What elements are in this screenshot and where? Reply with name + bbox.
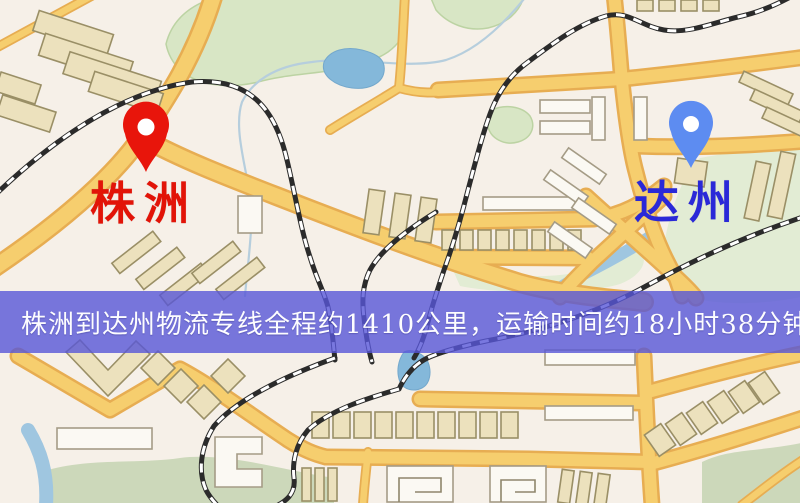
red-pin-hole bbox=[138, 119, 155, 136]
blue-pin-hole bbox=[683, 116, 699, 132]
route-map-image: 株洲 达州 株洲到达州物流专线全程约1410公里，运输时间约18小时38分钟. bbox=[0, 0, 800, 503]
map-canvas bbox=[0, 0, 800, 503]
route-info-text: 株洲到达州物流专线全程约1410公里，运输时间约18小时38分钟. bbox=[21, 304, 800, 341]
route-info-banner: 株洲到达州物流专线全程约1410公里，运输时间约18小时38分钟. bbox=[0, 291, 800, 353]
